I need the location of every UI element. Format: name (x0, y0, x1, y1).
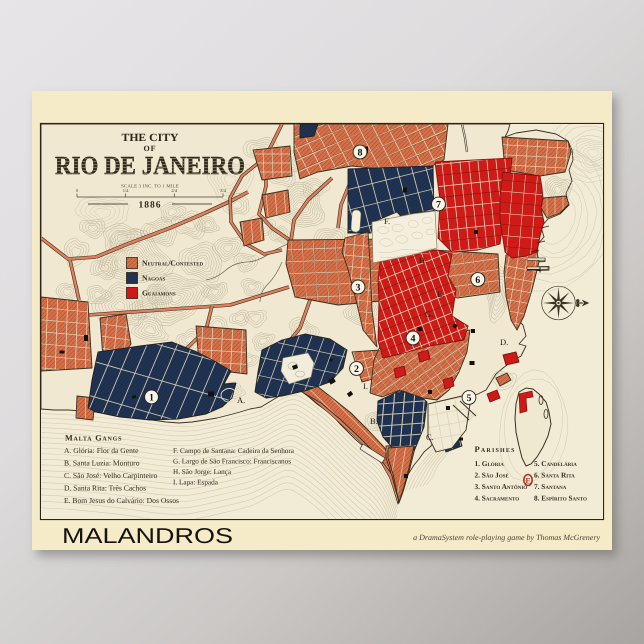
svg-text:F.: F. (384, 216, 390, 226)
svg-text:8. Espírito Santo: 8. Espírito Santo (534, 494, 587, 503)
svg-text:a DramaSystem role-playing gam: a DramaSystem role-playing game by Thoma… (413, 533, 600, 542)
svg-text:G. Largo de São Francisco: Fra: G. Largo de São Francisco: Franciscanos (173, 458, 291, 466)
svg-text:I.: I. (363, 381, 368, 391)
svg-text:H. São Jorge: Lança: H. São Jorge: Lança (173, 468, 232, 476)
svg-text:F. Campo de Santana: Cadeira d: F. Campo de Santana: Cadeira da Senhora (173, 447, 295, 455)
svg-text:2: 2 (354, 364, 359, 375)
svg-text:THE CITY: THE CITY (122, 132, 179, 144)
svg-text:E: E (525, 477, 530, 486)
svg-text:SCALE 3 INC. TO 1 MILE: SCALE 3 INC. TO 1 MILE (121, 184, 179, 190)
svg-text:2/4: 2/4 (171, 188, 178, 193)
svg-text:H.: H. (419, 255, 427, 265)
svg-text:B.: B. (370, 416, 378, 426)
svg-text:6: 6 (475, 275, 480, 286)
svg-text:A.: A. (237, 395, 245, 405)
svg-text:C. São José: Velho Carpinteiro: C. São José: Velho Carpinteiro (64, 471, 158, 480)
svg-text:7: 7 (436, 199, 441, 210)
svg-text:5: 5 (467, 393, 472, 404)
svg-text:Neutral/Contested: Neutral/Contested (142, 259, 204, 268)
svg-text:1: 1 (149, 392, 154, 403)
svg-text:D. Santa Rita: Três Cachos: D. Santa Rita: Três Cachos (64, 484, 146, 493)
svg-text:E. Bom Jesus do Calvário: Dos: E. Bom Jesus do Calvário: Dos Ossos (64, 496, 179, 505)
svg-text:4. Sacramento: 4. Sacramento (475, 494, 520, 503)
svg-text:7. Santana: 7. Santana (534, 482, 567, 491)
svg-text:C.: C. (426, 432, 434, 442)
svg-text:6. Santa Rita: 6. Santa Rita (534, 471, 575, 480)
svg-text:A. Glória: Flor da Gente: A. Glória: Flor da Gente (64, 446, 139, 455)
svg-text:Nagoas: Nagoas (142, 274, 165, 283)
svg-text:1886: 1886 (139, 201, 162, 211)
svg-text:2. São José: 2. São José (475, 471, 510, 480)
svg-text:I. Lapa: Espada: I. Lapa: Espada (173, 479, 219, 487)
svg-text:D.: D. (500, 337, 508, 347)
svg-text:4: 4 (411, 333, 416, 344)
svg-text:RIO DE JANEIRO: RIO DE JANEIRO (55, 151, 245, 180)
svg-text:3. Santo Antônio: 3. Santo Antônio (475, 482, 528, 491)
svg-text:G.: G. (425, 309, 433, 319)
svg-text:3/4: 3/4 (220, 188, 227, 193)
svg-text:MALANDROS: MALANDROS (62, 524, 233, 548)
svg-text:Guaiamons: Guaiamons (142, 289, 176, 298)
svg-text:E.: E. (437, 289, 444, 299)
svg-text:8: 8 (358, 147, 363, 158)
svg-text:1. Glória: 1. Glória (475, 459, 505, 468)
svg-text:Parishes: Parishes (475, 444, 516, 454)
svg-text:Malta Gangs: Malta Gangs (65, 434, 122, 443)
svg-text:5. Candelária: 5. Candelária (534, 459, 577, 468)
svg-text:3: 3 (356, 282, 361, 293)
svg-text:1/4: 1/4 (123, 188, 130, 193)
svg-text:B. Santa Luzia: Monturo: B. Santa Luzia: Monturo (64, 459, 140, 468)
